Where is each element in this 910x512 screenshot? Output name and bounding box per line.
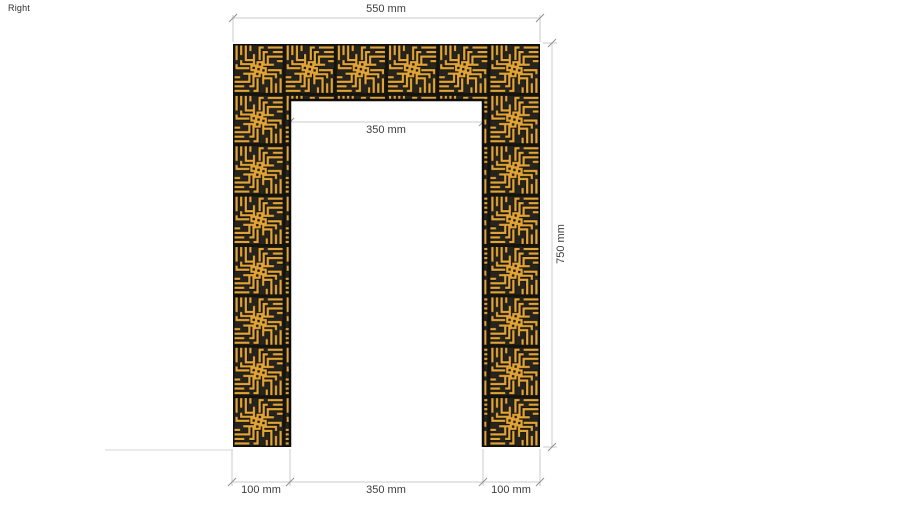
portal-frame-shape[interactable] <box>233 44 540 447</box>
sketchup-viewport[interactable]: Right <box>0 0 910 512</box>
dim-top-width-label[interactable]: 550 mm <box>346 3 426 15</box>
dim-bottom-left-column-label[interactable]: 100 mm <box>221 484 301 496</box>
portal-frame-model[interactable] <box>233 44 540 447</box>
dim-opening-width-label[interactable]: 350 mm <box>346 124 426 136</box>
dim-top-width-lines <box>233 15 540 42</box>
dim-bottom-right-column-label[interactable]: 100 mm <box>471 484 551 496</box>
dim-height-label[interactable]: 750 mm <box>555 204 567 284</box>
dim-bottom-opening-label[interactable]: 350 mm <box>346 484 426 496</box>
dim-bottom-lines <box>232 449 540 486</box>
